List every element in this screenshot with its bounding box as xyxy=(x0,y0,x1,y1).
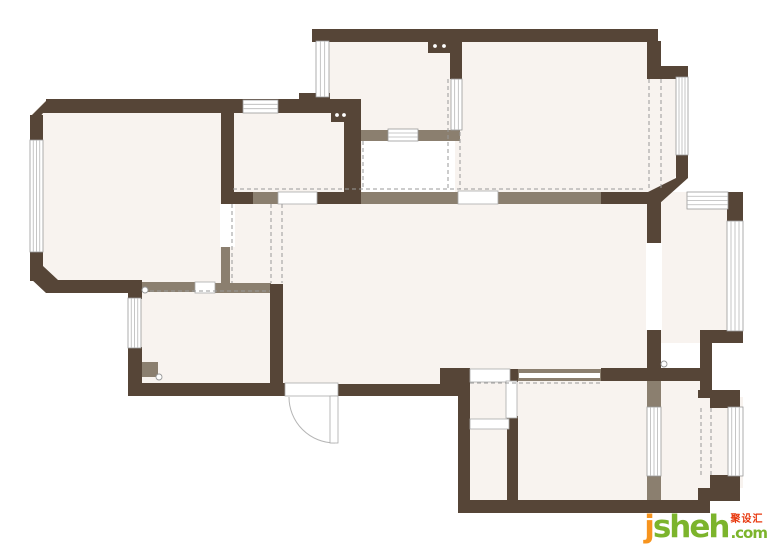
watermark-logo: j sheh 聚设汇 .com xyxy=(644,512,767,543)
watermark-brand-rest: sheh xyxy=(653,512,729,543)
watermark-right-column: 聚设汇 .com xyxy=(730,515,767,541)
floorplan-page: j sheh 聚设汇 .com xyxy=(0,0,770,544)
entry-door-swing xyxy=(289,396,338,443)
watermark-tld: .com xyxy=(730,526,767,541)
watermark-brand-j: j xyxy=(644,512,653,543)
floorplan-drawing xyxy=(0,0,770,544)
